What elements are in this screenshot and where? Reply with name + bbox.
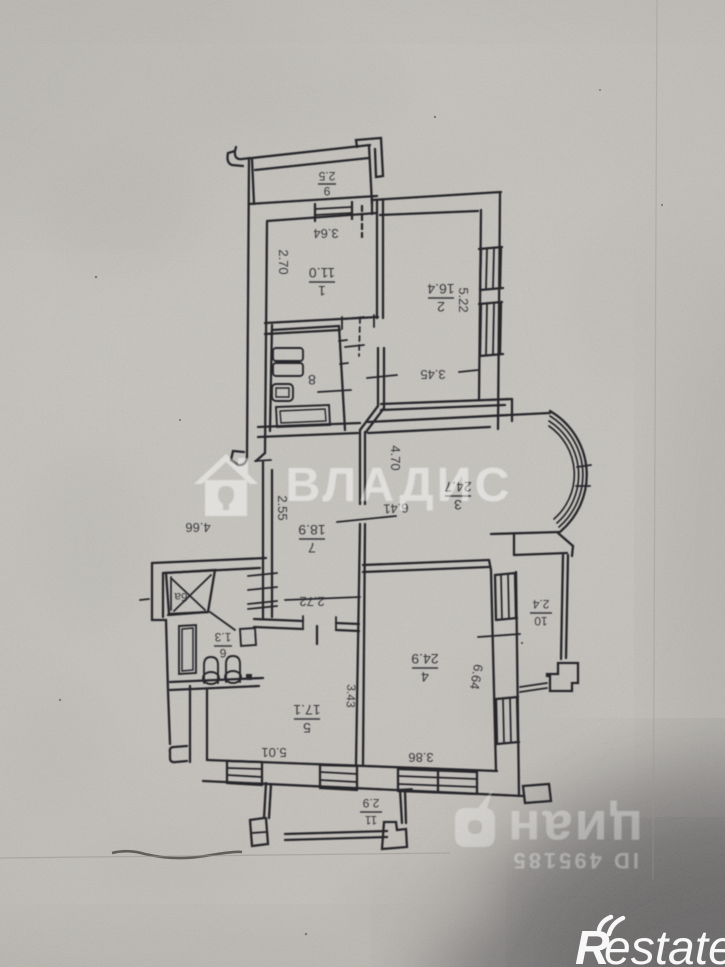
svg-text:3.45: 3.45: [420, 367, 445, 382]
svg-text:ID 495185: ID 495185: [510, 848, 639, 873]
svg-text:3.86: 3.86: [408, 750, 433, 765]
svg-text:6а: 6а: [174, 590, 188, 604]
svg-text:5: 5: [303, 720, 311, 736]
svg-text:estate: estate: [604, 922, 725, 967]
svg-text:17.1: 17.1: [293, 702, 320, 718]
svg-text:2.9: 2.9: [362, 796, 379, 810]
svg-text:5.01: 5.01: [261, 745, 286, 760]
svg-text:2.4: 2.4: [532, 597, 549, 611]
svg-text:2.72: 2.72: [299, 594, 324, 609]
svg-text:10: 10: [534, 614, 548, 628]
svg-text:1: 1: [318, 283, 326, 299]
svg-text:2: 2: [437, 299, 445, 315]
svg-text:4.66: 4.66: [185, 520, 210, 535]
svg-text:18.9: 18.9: [298, 522, 325, 538]
svg-text:11.0: 11.0: [309, 265, 335, 281]
svg-text:5.22: 5.22: [456, 287, 471, 312]
svg-text:1.3: 1.3: [214, 630, 231, 644]
svg-text:9: 9: [323, 184, 330, 198]
svg-text:2.5: 2.5: [318, 169, 335, 183]
svg-text:3.43: 3.43: [344, 684, 359, 708]
svg-text:3.64: 3.64: [313, 226, 338, 241]
svg-text:6: 6: [219, 646, 226, 660]
svg-text:8: 8: [308, 372, 316, 388]
svg-text:11: 11: [364, 813, 377, 827]
svg-text:ВЛАДИС: ВЛАДИС: [285, 458, 512, 512]
svg-text:4: 4: [421, 669, 429, 685]
svg-text:24.9: 24.9: [411, 651, 438, 667]
svg-text:2.70: 2.70: [276, 249, 291, 274]
svg-text:16.4: 16.4: [427, 281, 454, 297]
svg-text:7: 7: [308, 540, 316, 556]
